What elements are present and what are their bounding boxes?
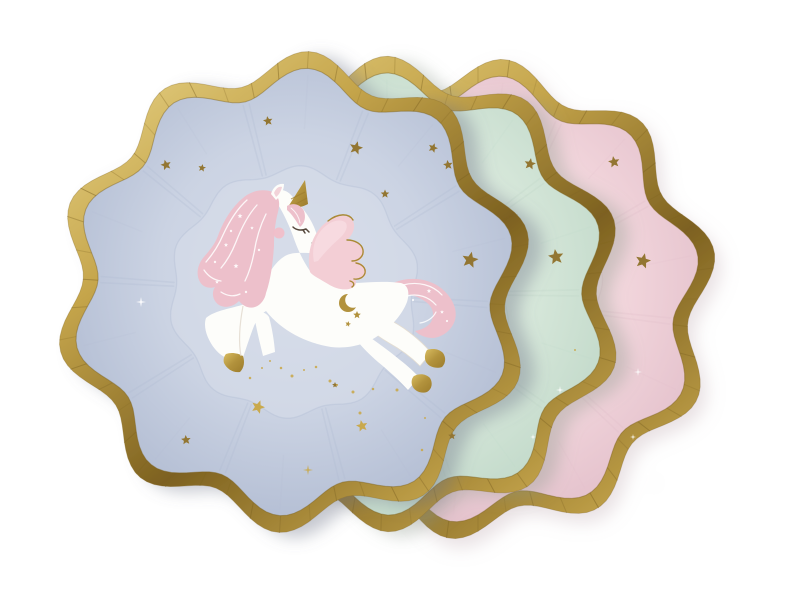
gold-speck [329, 380, 332, 383]
sparkle [645, 471, 652, 478]
gold-speck [261, 367, 263, 369]
gold-speck [421, 449, 424, 452]
gold-speck [280, 367, 283, 370]
gold-speck [336, 384, 338, 386]
gold-speck [249, 377, 252, 380]
foil-crease-tick [582, 300, 597, 301]
unicorn-plates-scene [0, 0, 800, 600]
crescent-moon-cut [345, 292, 361, 308]
unicorn-cheek [274, 228, 285, 239]
gold-speck [396, 389, 399, 392]
mane-dot [214, 261, 216, 263]
gold-speck [574, 349, 576, 351]
gold-speck [372, 388, 375, 391]
foil-crease-tick [381, 514, 382, 532]
gold-speck [352, 391, 355, 394]
fold-crease [507, 295, 579, 296]
gold-speck [315, 366, 318, 369]
tail-dot [412, 299, 414, 301]
gold-speck [303, 369, 305, 371]
mane-dot [230, 230, 232, 232]
tail-dot [446, 320, 448, 322]
product-photo-unicorn-plates [0, 0, 800, 600]
gold-speck [291, 375, 294, 378]
gold-speck [424, 417, 426, 419]
mane-dot [245, 291, 247, 293]
gold-speck [359, 412, 362, 415]
foil-crease-tick [395, 57, 396, 75]
gold-speck [269, 360, 271, 362]
mane-dot [258, 249, 260, 251]
